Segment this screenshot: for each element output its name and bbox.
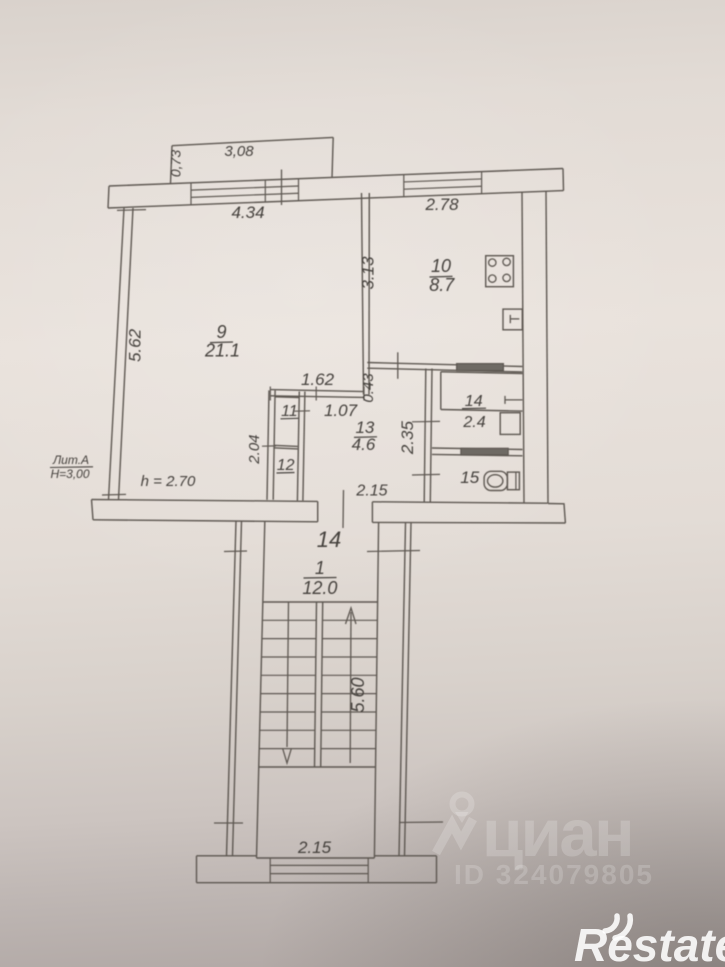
svg-text:10: 10 <box>431 256 451 276</box>
svg-text:5.62: 5.62 <box>126 328 145 362</box>
svg-text:ID 324079805: ID 324079805 <box>454 859 654 890</box>
svg-text:12: 12 <box>277 457 295 474</box>
svg-text:2.15: 2.15 <box>297 838 332 857</box>
svg-text:2.35: 2.35 <box>398 421 417 456</box>
svg-text:2.15: 2.15 <box>355 483 387 500</box>
svg-text:3,08: 3,08 <box>224 143 254 160</box>
svg-text:0,73: 0,73 <box>168 150 184 177</box>
svg-text:8.7: 8.7 <box>429 275 455 295</box>
svg-text:0.43: 0.43 <box>360 373 377 403</box>
svg-text:14: 14 <box>317 527 341 552</box>
svg-text:h = 2.70: h = 2.70 <box>141 473 196 490</box>
svg-text:11: 11 <box>281 403 298 420</box>
svg-text:21.1: 21.1 <box>204 341 240 361</box>
svg-text:2.4: 2.4 <box>462 414 485 431</box>
svg-text:4.34: 4.34 <box>231 203 264 222</box>
svg-text:12.0: 12.0 <box>302 578 337 598</box>
svg-text:2.78: 2.78 <box>424 195 459 214</box>
svg-text:5.60: 5.60 <box>348 677 368 712</box>
svg-text:Restate: Restate <box>574 919 725 967</box>
svg-text:1: 1 <box>315 558 325 578</box>
svg-text:Лит.А: Лит.А <box>52 453 89 467</box>
svg-text:4.6: 4.6 <box>352 435 376 454</box>
svg-text:1.62: 1.62 <box>301 370 335 389</box>
svg-text:1.07: 1.07 <box>324 401 358 420</box>
svg-text:2.04: 2.04 <box>246 434 263 464</box>
svg-text:3.13: 3.13 <box>359 256 378 290</box>
svg-text:14: 14 <box>465 393 483 410</box>
svg-text:9: 9 <box>216 322 226 342</box>
svg-text:15: 15 <box>460 468 479 487</box>
svg-text:Н=3,00: Н=3,00 <box>50 467 89 481</box>
